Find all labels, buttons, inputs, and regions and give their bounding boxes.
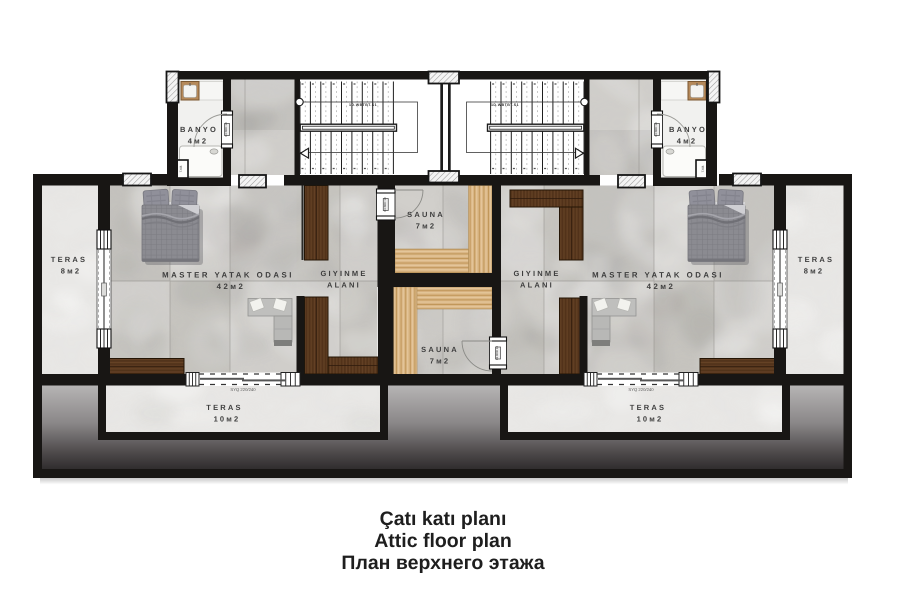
- svg-text:TERAS: TERAS: [630, 403, 666, 412]
- svg-text:03 B0D 10: 03 B0D 10: [495, 346, 499, 361]
- svg-text:MASTER YATAK ODASI: MASTER YATAK ODASI: [592, 271, 724, 280]
- svg-text:7м2: 7м2: [430, 357, 451, 366]
- svg-text:План верхнего этажа: План верхнего этажа: [341, 552, 544, 574]
- svg-text:03 B0D 10: 03 B0D 10: [383, 197, 387, 212]
- svg-text:SYQ 220/240: SYQ 220/240: [230, 387, 256, 392]
- svg-text:BANYO: BANYO: [180, 125, 218, 134]
- svg-text:8м2: 8м2: [61, 267, 82, 276]
- svg-text:Attic floor plan: Attic floor plan: [374, 530, 512, 552]
- svg-text:Çatı katı planı: Çatı katı planı: [380, 508, 507, 530]
- svg-text:SYQ 220/240: SYQ 220/240: [628, 387, 654, 392]
- svg-text:4м2: 4м2: [677, 137, 698, 146]
- svg-text:10м2: 10м2: [214, 415, 241, 424]
- svg-text:ALANI: ALANI: [327, 281, 361, 290]
- svg-text:GIYINME: GIYINME: [513, 269, 560, 278]
- svg-text:MASTER YATAK ODASI: MASTER YATAK ODASI: [162, 271, 294, 280]
- svg-text:10м2: 10м2: [637, 415, 664, 424]
- svg-text:ALANI: ALANI: [520, 281, 554, 290]
- svg-text:42м2: 42м2: [647, 282, 676, 291]
- svg-text:03 B0D 10: 03 B0D 10: [224, 122, 228, 137]
- svg-text:03 B0D 10: 03 B0D 10: [654, 122, 658, 137]
- svg-text:1D.WBTBT.S1: 1D.WBTBT.S1: [349, 103, 377, 107]
- svg-text:T.KB: T.KB: [701, 166, 705, 173]
- svg-text:TERAS: TERAS: [206, 403, 242, 412]
- svg-text:SAUNA: SAUNA: [407, 210, 445, 219]
- svg-text:42м2: 42м2: [217, 282, 246, 291]
- svg-text:8м2: 8м2: [804, 267, 825, 276]
- svg-text:TERAS: TERAS: [798, 255, 834, 264]
- svg-text:TERAS: TERAS: [51, 255, 87, 264]
- svg-text:GIYINME: GIYINME: [320, 269, 367, 278]
- svg-text:BANYO: BANYO: [669, 125, 707, 134]
- svg-text:4м2: 4м2: [188, 137, 209, 146]
- svg-text:SAUNA: SAUNA: [421, 345, 459, 354]
- svg-text:T.KB: T.KB: [179, 166, 183, 173]
- svg-text:1D.WBTBT.S1: 1D.WBTBT.S1: [491, 103, 519, 107]
- svg-text:7м2: 7м2: [416, 222, 437, 231]
